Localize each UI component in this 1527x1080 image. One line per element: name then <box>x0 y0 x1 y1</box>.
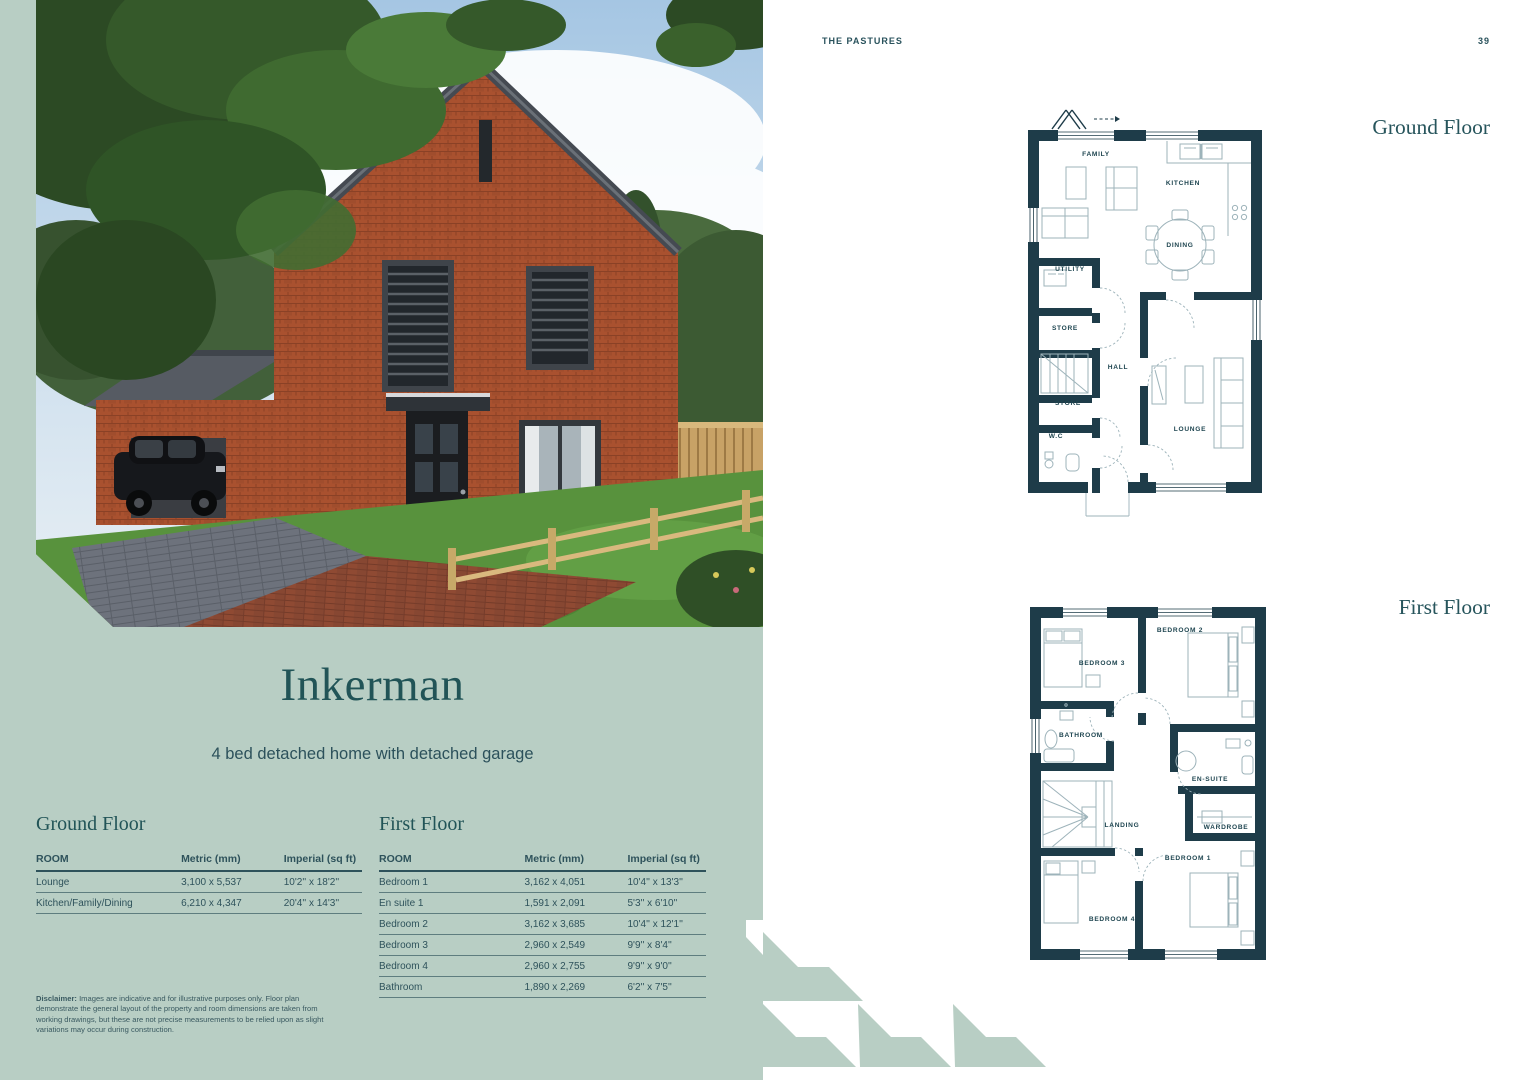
room-label-kitchen: KITCHEN <box>1166 180 1200 187</box>
page-header-development-name: THE PASTURES <box>822 36 903 46</box>
room-label-hall: HALL <box>1108 364 1128 371</box>
first-floor-table-title: First Floor <box>379 813 464 836</box>
table-row: Lounge3,100 x 5,53710'2'' x 18'2'' <box>36 871 362 893</box>
table-row: Bedroom 13,162 x 4,05110'4'' x 13'3'' <box>379 871 706 893</box>
ground-floor-plan-title: Ground Floor <box>1230 115 1490 140</box>
table-cell: 6'2'' x 7'5'' <box>628 977 707 998</box>
page-number: 39 <box>1440 36 1490 46</box>
room-label-family: FAMILY <box>1082 151 1110 158</box>
table-cell: Bathroom <box>379 977 525 998</box>
table-cell: 20'4'' x 14'3'' <box>284 893 362 914</box>
table-cell: Bedroom 2 <box>379 914 525 935</box>
table-cell: 9'9'' x 9'0'' <box>628 956 707 977</box>
table-header-row: ROOM Metric (mm) Imperial (sq ft) <box>36 851 362 871</box>
table-cell: Kitchen/Family/Dining <box>36 893 181 914</box>
table-row: Bedroom 23,162 x 3,68510'4'' x 12'1'' <box>379 914 706 935</box>
room-label-bathroom: BATHROOM <box>1059 732 1103 739</box>
table-cell: 3,162 x 4,051 <box>525 871 628 893</box>
table-cell: 10'4'' x 13'3'' <box>628 871 707 893</box>
table-cell: 1,890 x 2,269 <box>525 977 628 998</box>
first-floor-plan: BEDROOM 3 BEDROOM 2 BATHROOM EN-SUITE WA… <box>1030 601 1266 963</box>
room-label-dining: DINING <box>1166 242 1193 249</box>
column-header-imperial: Imperial (sq ft) <box>628 851 707 871</box>
room-label-wc: W.C <box>1049 433 1064 440</box>
house-photo-illustration <box>36 0 763 627</box>
room-label-en-suite: EN-SUITE <box>1192 776 1228 783</box>
table-cell: 10'2'' x 18'2'' <box>284 871 362 893</box>
table-row: Bathroom1,890 x 2,2696'2'' x 7'5'' <box>379 977 706 998</box>
room-label-bedroom-1: BEDROOM 1 <box>1165 855 1211 862</box>
table-cell: 1,591 x 2,091 <box>525 893 628 914</box>
table-row: Bedroom 42,960 x 2,7559'9'' x 9'0'' <box>379 956 706 977</box>
table-cell: 2,960 x 2,755 <box>525 956 628 977</box>
room-label-store-1: STORE <box>1052 325 1078 332</box>
table-cell: 2,960 x 2,549 <box>525 935 628 956</box>
table-row: En suite 11,591 x 2,0915'3'' x 6'10'' <box>379 893 706 914</box>
table-cell: Lounge <box>36 871 181 893</box>
room-label-wardrobe: WARDROBE <box>1204 824 1249 831</box>
disclaimer-label: Disclaimer: <box>36 994 77 1003</box>
table-cell: 5'3'' x 6'10'' <box>628 893 707 914</box>
room-label-bedroom-4: BEDROOM 4 <box>1089 916 1135 923</box>
first-floor-plan-title: First Floor <box>1230 595 1490 620</box>
hero-photo <box>36 0 763 627</box>
room-label-bedroom-2: BEDROOM 2 <box>1157 627 1203 634</box>
walls <box>1030 607 1266 960</box>
disclaimer-text: Disclaimer: Images are indicative and fo… <box>36 994 336 1036</box>
table-cell: 3,100 x 5,537 <box>181 871 284 893</box>
room-label-store-2: STORE <box>1055 400 1081 407</box>
table-header-row: ROOM Metric (mm) Imperial (sq ft) <box>379 851 706 871</box>
room-label-lounge: LOUNGE <box>1174 426 1206 433</box>
table-cell: 9'9'' x 8'4'' <box>628 935 707 956</box>
column-header-room: ROOM <box>379 851 525 871</box>
decorative-staircase-motif <box>741 915 1051 1080</box>
first-floor-dimensions-table: ROOM Metric (mm) Imperial (sq ft) Bedroo… <box>379 851 706 998</box>
table-cell: 6,210 x 4,347 <box>181 893 284 914</box>
ground-floor-plan: FAMILY KITCHEN DINING UTILITY STORE HALL… <box>1028 108 1262 520</box>
room-label-utility: UTILITY <box>1055 266 1085 273</box>
table-row: Kitchen/Family/Dining6,210 x 4,34720'4''… <box>36 893 362 914</box>
left-page: Inkerman 4 bed detached home with detach… <box>0 0 763 1080</box>
table-cell: Bedroom 3 <box>379 935 525 956</box>
table-cell: Bedroom 4 <box>379 956 525 977</box>
rooflight-symbol <box>1052 110 1120 129</box>
column-header-room: ROOM <box>36 851 181 871</box>
property-subtitle: 4 bed detached home with detached garage <box>36 745 709 764</box>
ground-floor-table-title: Ground Floor <box>36 813 145 836</box>
column-header-metric: Metric (mm) <box>181 851 284 871</box>
room-labels: BEDROOM 3 BEDROOM 2 BATHROOM EN-SUITE WA… <box>1059 627 1248 923</box>
column-header-metric: Metric (mm) <box>525 851 628 871</box>
table-cell: 10'4'' x 12'1'' <box>628 914 707 935</box>
ground-floor-dimensions-table: ROOM Metric (mm) Imperial (sq ft) Lounge… <box>36 851 362 914</box>
table-cell: En suite 1 <box>379 893 525 914</box>
column-header-imperial: Imperial (sq ft) <box>284 851 362 871</box>
property-name: Inkerman <box>36 658 709 712</box>
table-row: Bedroom 32,960 x 2,5499'9'' x 8'4'' <box>379 935 706 956</box>
table-cell: 3,162 x 3,685 <box>525 914 628 935</box>
room-label-landing: LANDING <box>1105 822 1140 829</box>
room-label-bedroom-3: BEDROOM 3 <box>1079 660 1125 667</box>
table-cell: Bedroom 1 <box>379 871 525 893</box>
